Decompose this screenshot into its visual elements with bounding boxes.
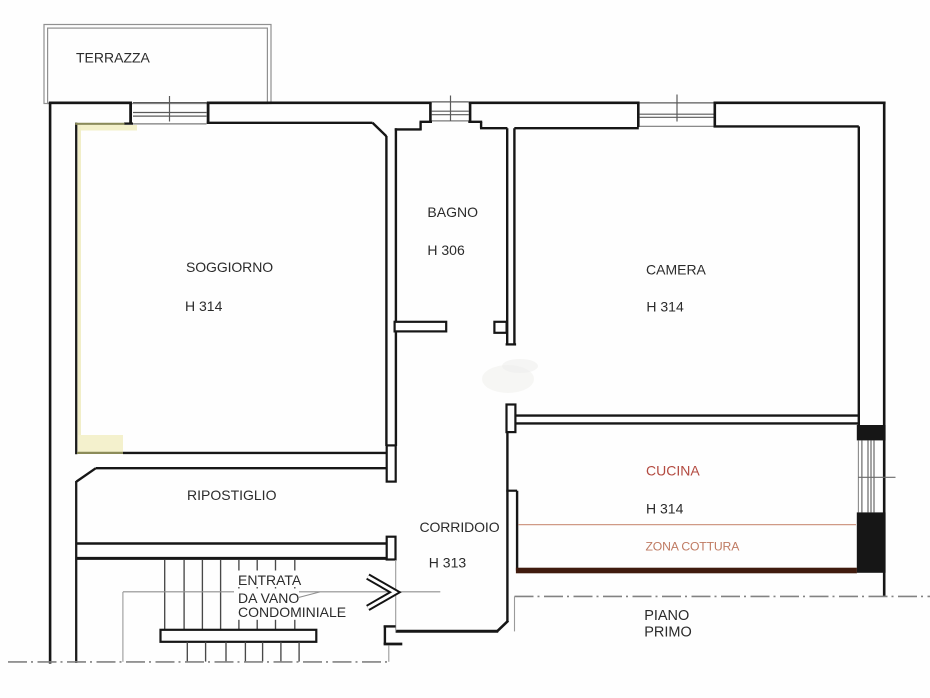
svg-text:CUCINA: CUCINA [646, 463, 700, 479]
svg-text:ZONA COTTURA: ZONA COTTURA [646, 540, 741, 554]
svg-text:CONDOMINIALE: CONDOMINIALE [238, 604, 346, 620]
svg-text:H 314: H 314 [646, 500, 684, 516]
svg-text:ENTRATA: ENTRATA [238, 572, 302, 588]
svg-text:H 314: H 314 [185, 298, 223, 314]
svg-text:CORRIDOIO: CORRIDOIO [420, 519, 500, 535]
svg-text:CAMERA: CAMERA [646, 262, 707, 278]
svg-text:H 306: H 306 [427, 242, 465, 258]
svg-text:PIANO: PIANO [644, 608, 689, 624]
svg-text:BAGNO: BAGNO [427, 204, 478, 220]
svg-text:PRIMO: PRIMO [644, 624, 692, 640]
svg-text:H 314: H 314 [646, 298, 684, 314]
svg-text:TERRAZZA: TERRAZZA [76, 50, 151, 66]
svg-text:RIPOSTIGLIO: RIPOSTIGLIO [187, 487, 277, 503]
svg-text:H 313: H 313 [429, 554, 467, 570]
svg-text:SOGGIORNO: SOGGIORNO [186, 259, 273, 275]
